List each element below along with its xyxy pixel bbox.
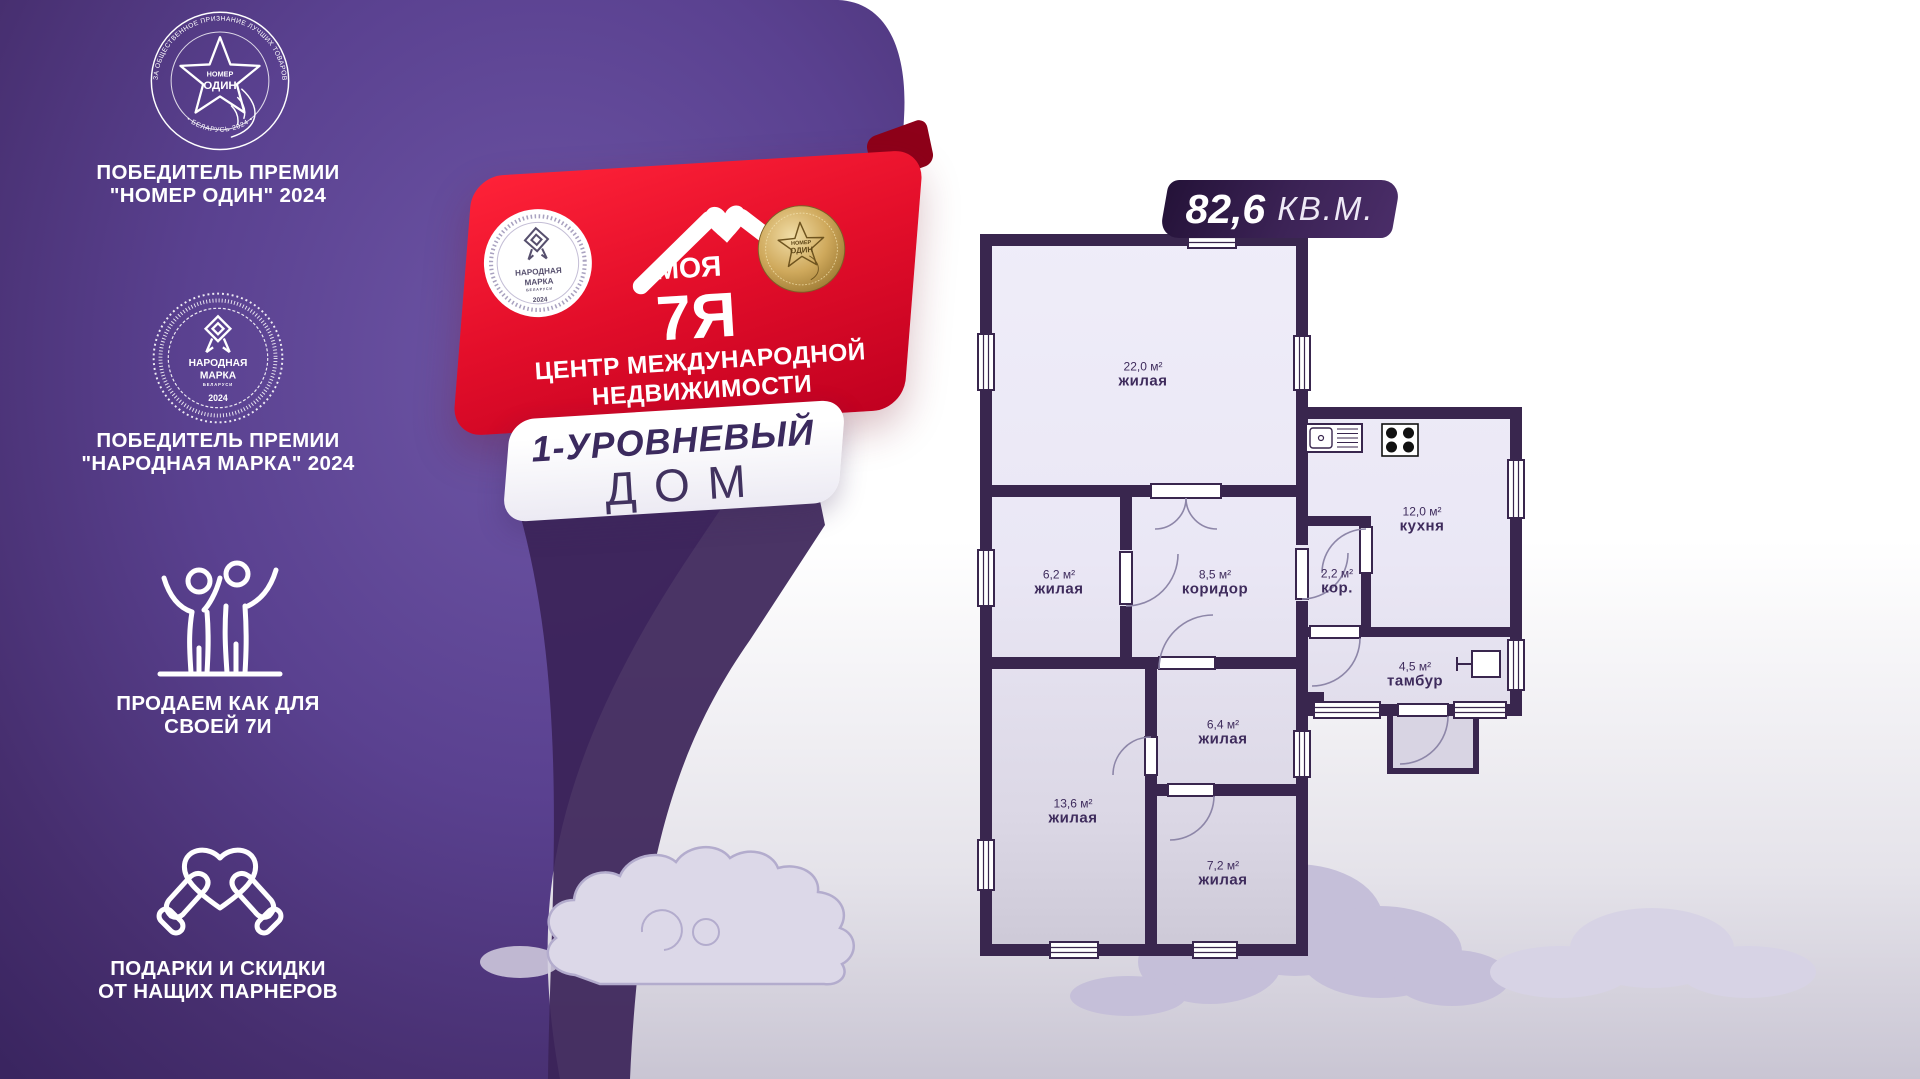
ribbon-subtitle: ЦЕНТР МЕЖДУНАРОДНОЙ НЕДВИЖИМОСТИ bbox=[496, 335, 907, 418]
room-label-living-136: 13,6 м² жилая bbox=[1049, 798, 1098, 827]
room-label-tambour: 4,5 м² тамбур bbox=[1387, 661, 1443, 690]
room-label-corridor-85: 8,5 м² коридор bbox=[1182, 569, 1248, 598]
medal-word-2: ОДИН bbox=[790, 245, 814, 255]
feature1-caption-line1: ПРОДАЕМ КАК ДЛЯ bbox=[18, 692, 418, 715]
narodnaya-marka-emblem-icon: НАРОДНАЯ МАРКА БЕЛАРУСИ 2024 bbox=[140, 280, 296, 436]
seal-word-2: МАРКА bbox=[524, 277, 554, 288]
brand-ribbon: НАРОДНАЯ МАРКА БЕЛАРУСИ 2024 МОЯ 7Я bbox=[452, 149, 924, 436]
promo-poster: НОМЕР ОДИН ПРЕМИЯ ЗА ОБЩЕСТВЕННОЕ ПРИЗНА… bbox=[0, 0, 1920, 1079]
room-label-living-22: 22,0 м² жилая bbox=[1119, 361, 1168, 390]
total-area-tag: 82,6 КВ.М. bbox=[1159, 180, 1401, 238]
nomer-odin-emblem-icon: НОМЕР ОДИН ПРЕМИЯ ЗА ОБЩЕСТВЕННОЕ ПРИЗНА… bbox=[142, 8, 298, 160]
award1-caption-line1: ПОБЕДИТЕЛЬ ПРЕМИИ bbox=[18, 161, 418, 184]
hands-heart-icon bbox=[145, 822, 295, 944]
filled-cloud-far-right bbox=[1490, 908, 1816, 998]
emblem-word-1: НОМЕР bbox=[207, 70, 234, 79]
gold-medal-icon: НОМЕР ОДИН bbox=[753, 200, 850, 297]
heart-icon bbox=[705, 205, 747, 244]
award1-caption: ПОБЕДИТЕЛЬ ПРЕМИИ "НОМЕР ОДИН" 2024 bbox=[18, 161, 418, 207]
feature2-caption-line1: ПОДАРКИ И СКИДКИ bbox=[18, 957, 418, 980]
emblem2-word-1: НАРОДНАЯ bbox=[189, 358, 248, 369]
narodnaya-marka-seal-icon: НАРОДНАЯ МАРКА БЕЛАРУСИ 2024 bbox=[479, 204, 598, 323]
feature1-caption-line2: СВОЕЙ 7И bbox=[18, 715, 418, 738]
award2-caption-line2: "НАРОДНАЯ МАРКА" 2024 bbox=[18, 452, 418, 475]
feature1-caption: ПРОДАЕМ КАК ДЛЯ СВОЕЙ 7И bbox=[18, 692, 418, 738]
emblem2-year: 2024 bbox=[208, 393, 228, 403]
awards-sidebar: НОМЕР ОДИН ПРЕМИЯ ЗА ОБЩЕСТВЕННОЕ ПРИЗНА… bbox=[0, 0, 440, 1079]
award2-caption-line1: ПОБЕДИТЕЛЬ ПРЕМИИ bbox=[18, 429, 418, 452]
room-label-corridor-22: 2,2 м² кор. bbox=[1321, 568, 1353, 597]
total-area-unit: КВ.М. bbox=[1277, 190, 1374, 228]
emblem2-word-3: БЕЛАРУСИ bbox=[203, 382, 233, 387]
room-label-living-62: 6,2 м² жилая bbox=[1035, 569, 1084, 598]
feature2-caption: ПОДАРКИ И СКИДКИ ОТ НАЩИХ ПАРНЕРОВ bbox=[18, 957, 418, 1003]
floor-plan-svg bbox=[975, 228, 1535, 968]
room-label-living-64: 6,4 м² жилая bbox=[1199, 719, 1248, 748]
room-label-kitchen: 12,0 м² кухня bbox=[1400, 506, 1445, 535]
room-label-living-72: 7,2 м² жилая bbox=[1199, 860, 1248, 889]
award1-caption-line2: "НОМЕР ОДИН" 2024 bbox=[18, 184, 418, 207]
floor-plan: 22,0 м² жилая 6,2 м² жилая 8,5 м² коридо… bbox=[975, 228, 1535, 968]
house-type-banner: 1-УРОВНЕВЫЙ ДОМ bbox=[502, 399, 845, 522]
award2-caption: ПОБЕДИТЕЛЬ ПРЕМИИ "НАРОДНАЯ МАРКА" 2024 bbox=[18, 429, 418, 475]
sink-icon bbox=[1306, 424, 1362, 452]
stove-icon bbox=[1382, 424, 1418, 456]
logo-mark: 7Я bbox=[654, 280, 738, 355]
emblem-word-2: ОДИН bbox=[203, 80, 236, 92]
emblem2-word-2: МАРКА bbox=[200, 370, 237, 381]
total-area-value: 82,6 bbox=[1185, 186, 1265, 233]
outline-cloud bbox=[480, 847, 854, 984]
porch bbox=[1390, 710, 1476, 771]
seal-year: 2024 bbox=[533, 296, 548, 304]
feature2-caption-line2: ОТ НАЩИХ ПАРНЕРОВ bbox=[18, 980, 418, 1003]
family-people-icon bbox=[150, 556, 290, 681]
main-block bbox=[986, 240, 1302, 950]
